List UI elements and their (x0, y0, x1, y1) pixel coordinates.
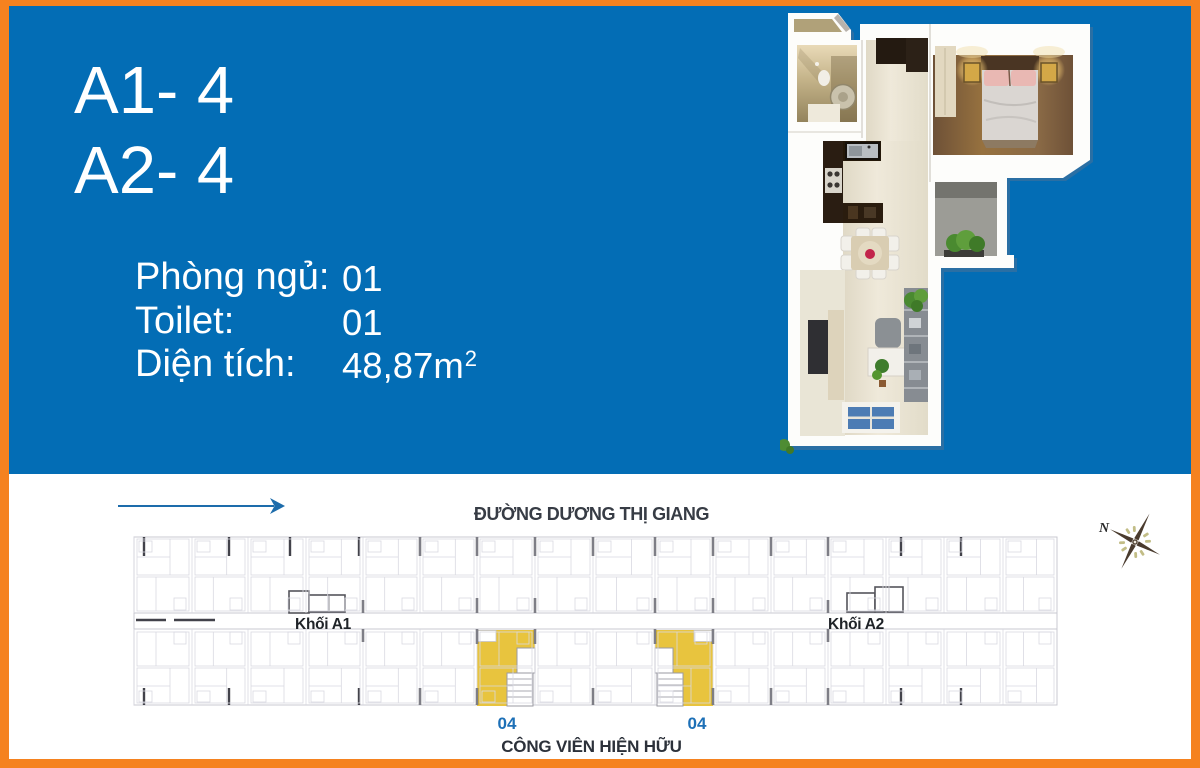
svg-text:04: 04 (688, 714, 707, 733)
svg-text:04: 04 (498, 714, 517, 733)
